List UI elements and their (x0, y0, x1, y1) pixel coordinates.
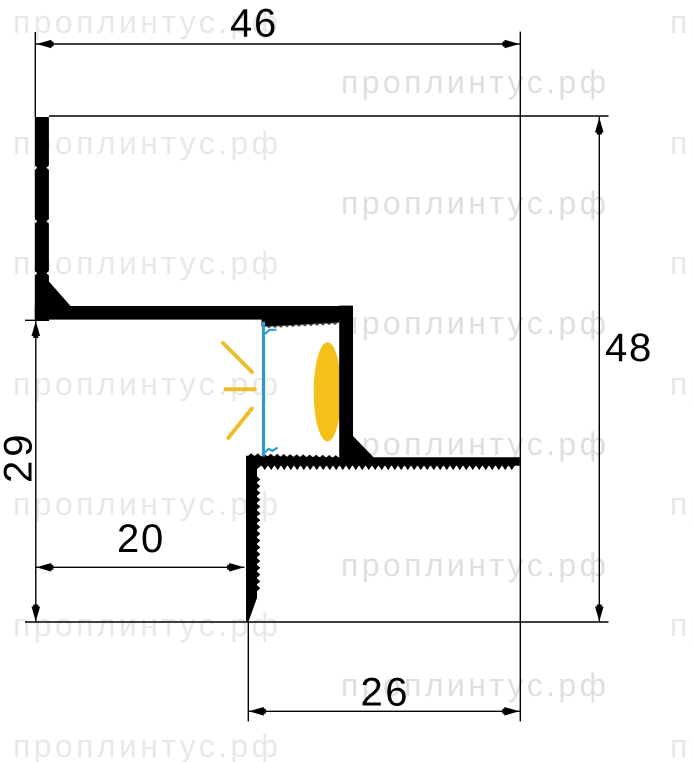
svg-text:проплинтус.рф: проплинтус.рф (13, 125, 281, 161)
svg-text:проплинтус.рф: проплинтус.рф (341, 64, 609, 100)
svg-text:проплинтус.рф: проплинтус.рф (670, 366, 693, 402)
svg-text:проплинтус.рф: проплинтус.рф (670, 486, 693, 522)
svg-text:проплинтус.рф: проплинтус.рф (670, 4, 693, 40)
svg-text:проплинтус.рф: проплинтус.рф (670, 728, 693, 762)
svg-text:проплинтус.рф: проплинтус.рф (670, 245, 693, 281)
svg-text:48: 48 (605, 326, 653, 370)
svg-text:проплинтус.рф: проплинтус.рф (13, 607, 281, 643)
svg-text:проплинтус.рф: проплинтус.рф (341, 305, 609, 341)
svg-text:29: 29 (0, 431, 41, 484)
svg-text:проплинтус.рф: проплинтус.рф (13, 728, 281, 762)
svg-text:проплинтус.рф: проплинтус.рф (13, 366, 281, 402)
svg-text:проплинтус.рф: проплинтус.рф (670, 607, 693, 643)
svg-text:46: 46 (230, 2, 278, 46)
svg-text:26: 26 (361, 671, 411, 715)
svg-text:проплинтус.рф: проплинтус.рф (341, 185, 609, 221)
svg-text:проплинтус.рф: проплинтус.рф (341, 547, 609, 583)
svg-text:проплинтус.рф: проплинтус.рф (13, 245, 281, 281)
svg-text:20: 20 (117, 517, 165, 561)
svg-text:проплинтус.рф: проплинтус.рф (341, 426, 609, 462)
svg-text:проплинтус.рф: проплинтус.рф (670, 125, 693, 161)
